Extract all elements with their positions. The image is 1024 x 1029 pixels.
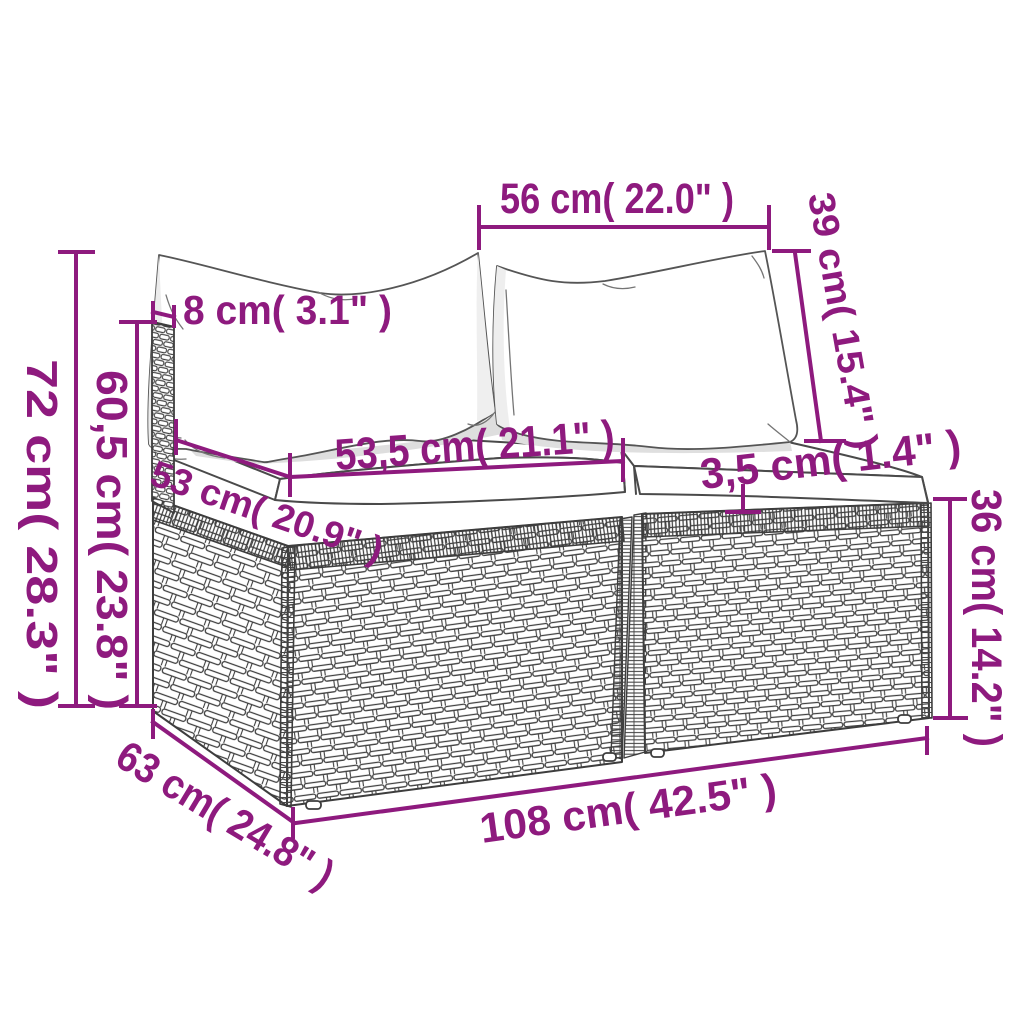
svg-text:56 cm( 22.0" ): 56 cm( 22.0" )	[500, 175, 734, 223]
svg-text:36 cm( 14.2" ): 36 cm( 14.2" )	[962, 489, 1010, 747]
svg-text:72 cm( 28.3" ): 72 cm( 28.3" )	[17, 359, 66, 709]
svg-text:8 cm( 3.1" ): 8 cm( 3.1" )	[183, 287, 392, 333]
svg-text:60,5 cm( 23.8" ): 60,5 cm( 23.8" )	[87, 370, 136, 710]
